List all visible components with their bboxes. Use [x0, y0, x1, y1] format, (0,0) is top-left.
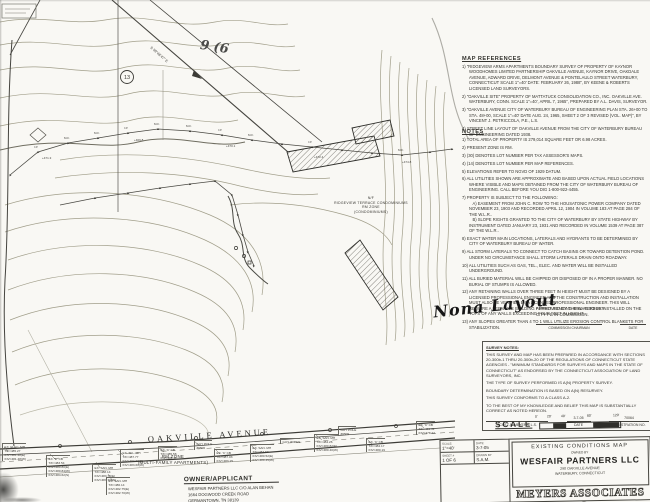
survey-note-paragraph: THIS SURVEY AND MAP HAS BEEN PREPARED IN…: [486, 352, 649, 378]
survey-note-paragraph: THIS SURVEY CONFORMS TO A CLASS A-2.: [486, 395, 649, 400]
approval-date-line: DATE: [620, 324, 646, 330]
zone-label-condominiums: N/F RIDGEVIEW TERRACE CONDOMINIUMS RM ZO…: [330, 196, 412, 214]
utility-callout: EX. 'C' CB T/F=484.17 INV=480.19: [366, 438, 385, 452]
scale-cell-value: 1"=40': [442, 445, 472, 451]
surveying-firm-name: MEYERS ASSOCIATES P.C.: [510, 486, 650, 501]
utility-callout: EX. 'C' CB T/F=483.54 INV=480.80(E) INV=…: [46, 455, 70, 477]
note-item: 8) EXACT WATER MAIN LOCATIONS, LATERALS …: [462, 236, 648, 247]
note-item: 4) (14) DENOTES LOT NUMBER PER MAP REFER…: [462, 161, 648, 166]
approval-block: APPROVED BY THE WATERBURY CITY PLAN COMM…: [536, 306, 605, 318]
utility-callout: GUY WIRES: [280, 438, 300, 444]
approval-line: CITY PLAN COMMISSION.: [536, 312, 605, 318]
map-reference-item: 3) "OAKVILLE AVENUE CITY OF WATERBURY BU…: [462, 107, 648, 123]
approval-signature-row: COMMISSION CHAIRMAN DATE: [536, 324, 646, 330]
map-reference-item: 1) "RIDGEVIEW ARMS APARTMENTS BOUNDARY S…: [462, 64, 648, 91]
scanned-survey-sheet: S 59°48'47" E I.P. M.F. M.F. I.P. M.F. M…: [0, 0, 650, 502]
title-block-info-column: SCALE: 1"=40' DATE: 3-7-05 SHEET # 1 OF …: [440, 440, 510, 502]
map-references-panel: MAP REFERENCES 1) "RIDGEVIEW ARMS APARTM…: [462, 56, 648, 139]
survey-notes-box: SURVEY NOTES: THIS SURVEY AND MAP HAS BE…: [482, 341, 650, 431]
survey-note-paragraph: THE TYPE OF SURVEY PERFORMED IS A(N) PRO…: [486, 380, 649, 385]
utility-callout: EX. 'C' CB T/F=487.03 INV=483.15: [214, 449, 233, 463]
utility-callout: EX. SAN. MH T/F=484.26 INV=480.82(E) INV…: [314, 434, 338, 452]
survey-note-paragraph: BOUNDARY DETERMINATION IS BASED ON A(N) …: [486, 388, 649, 393]
utility-callout: GUY POLE #6509: [338, 426, 356, 436]
survey-note-paragraph: TO THE BEST OF MY KNOWLEDGE AND BELIEF T…: [486, 403, 649, 414]
map-reference-item: 2) "OAKVILLE SITE" PROPERTY OF MATTATUCK…: [462, 94, 648, 105]
scan-edge: [0, 0, 650, 2]
pencil-handwriting: 9 (6: [199, 38, 230, 57]
map-references-title: MAP REFERENCES: [462, 56, 648, 62]
notes-title: NOTES: [462, 129, 648, 135]
scale-bar: [539, 421, 621, 429]
owner-applicant-block: OWNER/APPLICANT WESFAIR PARTNERS LLC C/O…: [184, 466, 335, 502]
scale-tick: 20': [547, 414, 551, 418]
utility-callout: EX. ELEC. MH T/F=485.27 INV=481.48(E) IN…: [2, 443, 26, 461]
scale-tick: 40': [561, 414, 565, 418]
survey-notes-title: SURVEY NOTES:: [486, 345, 649, 350]
owner-applicant-lines: WESFAIR PARTNERS LLC C/O ALAN BEHAN 1664…: [184, 484, 334, 502]
drawn-by-cell: DRAWN BY S.A.M.: [475, 452, 509, 464]
utility-callout: EX. 'C' CB T/F=485.58 INV=481.11: [158, 446, 177, 460]
utility-callout: EX. TEL. MH T/F=487.77 INV=483.60(E) INV…: [120, 449, 144, 467]
scale-tick: 120': [613, 413, 619, 417]
note-item: 3) (30) DENOTES LOT NUMBER PER TAX ASSES…: [462, 153, 648, 158]
sheet-cell: SHEET # 1 OF 6: [441, 452, 475, 464]
note-item: 7) PROPERTY IS SUBJECT TO THE FOLLOWING:…: [462, 195, 648, 233]
utility-callout: EX. 'C' CB T/F=481.41 INV=478.22: [416, 421, 435, 435]
utility-callout: EX. SAN. MH T/F=483.62 INV=480.52(E) INV…: [250, 444, 274, 462]
scale-tick: 0': [535, 415, 538, 419]
scan-edge: [0, 0, 2, 502]
scale-tick: 80': [587, 414, 591, 418]
owner-applicant-title: OWNER/APPLICANT: [184, 475, 279, 485]
note-item: 11) ALL BURIED MATERIAL WILL BE CHIPPED …: [462, 276, 648, 287]
title-block: SCALE: 1"=40' DATE: 3-7-05 SHEET # 1 OF …: [439, 436, 650, 502]
commission-chairman-line: COMMISSION CHAIRMAN: [536, 324, 602, 330]
date-cell: DATE: 3-7-05: [474, 440, 508, 453]
note-item: 6) ALL UTILITIES SHOWN ARE APPROXIMATE A…: [462, 176, 648, 192]
scan-smudge: [2, 497, 42, 502]
utility-callout: EX. SAN. MH T/F=486.14 INV=482.75(E) INV…: [106, 477, 130, 495]
scale-cell: SCALE: 1"=40': [440, 440, 474, 453]
title-block-main: EXISTING CONDITIONS MAP OWNED BY WESFAIR…: [509, 437, 650, 501]
drawn-by-cell-value: S.A.M.: [476, 456, 507, 462]
note-item: 2) PRESENT ZONE IS RM.: [462, 145, 648, 150]
utility-callout: GUY POLE #6506: [194, 440, 212, 450]
scale-word: SCALE: [495, 420, 532, 430]
date-cell-value: 3-7-05: [476, 444, 507, 450]
sheet-cell-value: 1 OF 6: [442, 457, 472, 463]
note-item: 9) ALL STORM LATERALS TO CONNECT TO CATC…: [462, 249, 648, 260]
note-item: 5) ELEVATIONS REFER TO NGVD OF 1929 DATU…: [462, 169, 648, 174]
note-item: 1) TOTAL AREA OF PROPERTY IS 279,014 SQU…: [462, 137, 648, 142]
title-area: EXISTING CONDITIONS MAP OWNED BY WESFAIR…: [511, 439, 649, 487]
note-item: 10) ALL UTILITIES SUCH AS GAS, TEL., ELE…: [462, 263, 648, 274]
